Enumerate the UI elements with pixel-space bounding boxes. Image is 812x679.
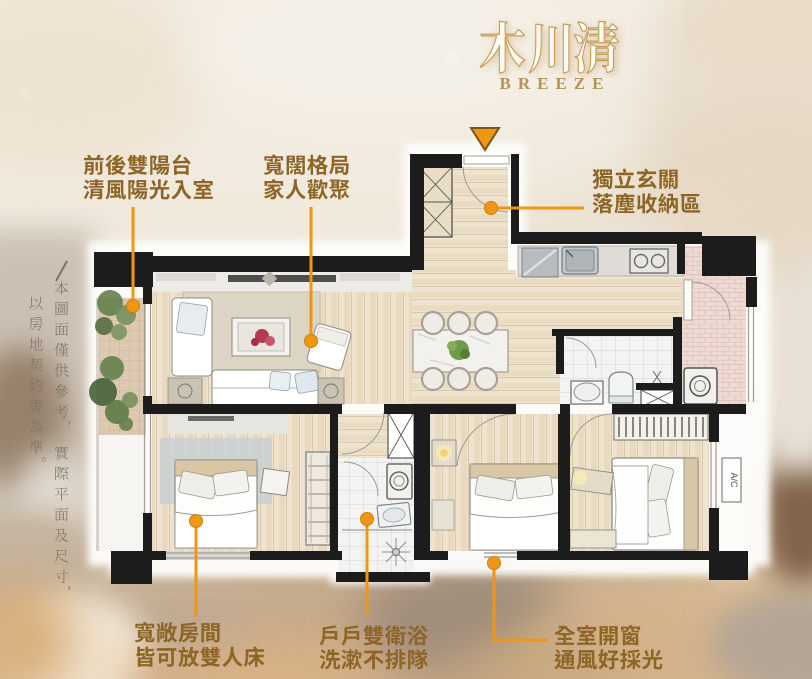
svg-text:BREEZE: BREEZE bbox=[500, 74, 611, 93]
svg-text:A/C: A/C bbox=[729, 472, 739, 488]
